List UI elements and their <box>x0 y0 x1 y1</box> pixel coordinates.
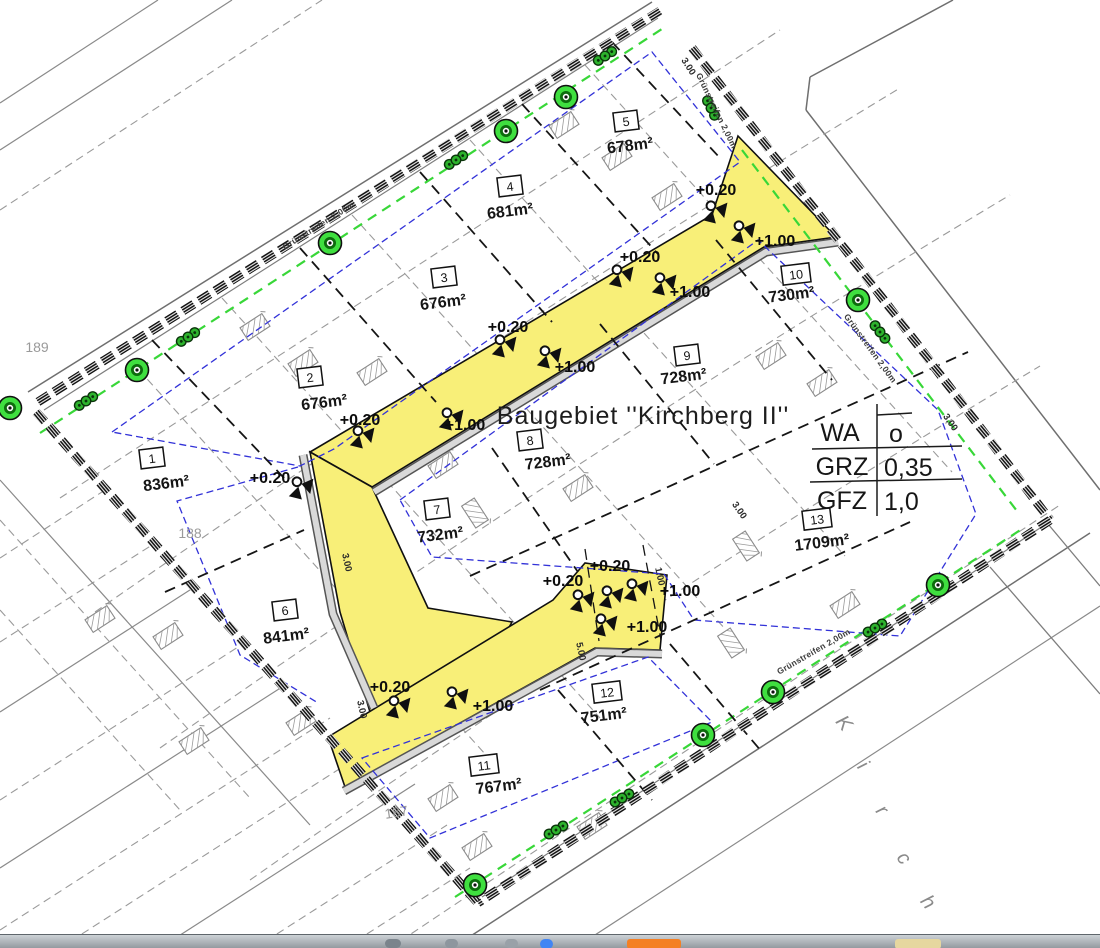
elevation-label: +1.00 <box>670 284 711 301</box>
parcel-area: 841m² <box>262 625 310 648</box>
tree-icon <box>692 724 715 747</box>
shrub-symbols <box>73 45 892 841</box>
shed-icon <box>461 829 496 860</box>
street-letter: c <box>892 848 915 869</box>
tree-icon <box>555 86 578 109</box>
road-main-branch <box>310 136 836 487</box>
parcel-label-9: 9 728m² <box>657 343 708 388</box>
cadastral-background-lines <box>0 0 1100 948</box>
parcel-area: 767m² <box>475 776 523 799</box>
parcel-label-11: 11 767m² <box>469 751 523 798</box>
parcel-number: 11 <box>477 758 492 773</box>
taskbar <box>0 934 1100 948</box>
parcel-area: 836m² <box>142 473 190 496</box>
taskbar-app-icon[interactable] <box>540 939 553 948</box>
elevation-label: +1.00 <box>445 417 486 434</box>
taskbar-app-icon[interactable] <box>895 939 941 948</box>
elevation-label: +0.20 <box>590 558 631 575</box>
dimension-label: 3.00 <box>940 412 960 433</box>
parcel-area: 732m² <box>416 524 464 547</box>
zoning-row-value: o <box>889 420 903 448</box>
site-plan-canvas: +0.20 +1.00 +0.20 +1.00 +0.20 +1.00 +0.2… <box>0 0 1100 948</box>
tree-icon <box>319 232 342 255</box>
shed-icon <box>548 107 583 138</box>
parcel-label-1: 1 836m² <box>139 444 190 495</box>
tree-icon <box>495 120 518 143</box>
shed-icon <box>562 470 597 501</box>
parcel-label-10: 10 730m² <box>765 263 816 307</box>
parcel-number: 10 <box>788 267 804 283</box>
shrub-icon <box>73 390 100 412</box>
zoning-row-value: 1,0 <box>884 488 919 516</box>
elevation-label: +0.20 <box>543 573 584 590</box>
district-number: 189 <box>25 339 49 355</box>
parcel-area: 681m² <box>486 200 534 223</box>
taskbar-app-icon[interactable] <box>445 939 458 948</box>
elevation-label: +0.20 <box>620 249 661 266</box>
elevation-label: +0.20 <box>696 182 737 199</box>
district-number: 188 <box>178 525 202 541</box>
elevation-label: +0.20 <box>370 679 411 696</box>
shed-icon <box>733 530 764 565</box>
elevation-label: +0.20 <box>250 470 291 487</box>
street-letter: r <box>871 801 893 821</box>
parcel-area: 1709m² <box>794 531 851 555</box>
shed-icon <box>651 179 686 210</box>
parcel-label-3: 3 676m² <box>416 265 467 314</box>
tree-icon <box>847 289 870 312</box>
shed-icon <box>427 780 462 811</box>
parcel-label-6: 6 841m² <box>259 598 310 648</box>
elevation-label: +0.20 <box>488 319 529 336</box>
elevation-label: +1.00 <box>755 233 796 250</box>
shed-icon <box>356 354 391 385</box>
dimension-label: 3.00 <box>729 500 749 521</box>
tree-icon <box>126 359 149 382</box>
zoning-row-value: 0,35 <box>884 454 933 482</box>
elevation-label: +1.00 <box>660 583 701 600</box>
shed-icon <box>755 338 790 369</box>
district-number: 187 <box>383 802 409 821</box>
boundary-northeast <box>692 48 1050 520</box>
taskbar-app-icon[interactable] <box>505 939 518 948</box>
shed-icon <box>239 309 274 340</box>
elevation-label: +1.00 <box>627 619 668 636</box>
dimension-label: 3.00 <box>354 699 369 719</box>
parcel-label-4: 4 681m² <box>483 174 534 223</box>
parcel-area: 730m² <box>768 284 816 307</box>
taskbar-app-icon[interactable] <box>627 939 681 948</box>
street-name-letters: K i r c h <box>831 711 940 913</box>
parcel-area: 678m² <box>606 135 654 158</box>
parcel-area: 676m² <box>419 292 467 315</box>
street-letter: K <box>831 711 858 736</box>
shrub-icon <box>175 326 202 348</box>
parcel-area: 751m² <box>580 705 628 728</box>
plan-title: Baugebiet ''Kirchberg II'' <box>497 402 789 430</box>
green-strip-label: Grünstreifen 2,00m <box>775 626 852 676</box>
tree-icon <box>762 681 785 704</box>
parcel-area: 728m² <box>660 366 708 389</box>
shed-icon <box>152 618 187 649</box>
elevation-label: +1.00 <box>473 698 514 715</box>
tree-icon <box>927 574 950 597</box>
zoning-row-label: GFZ <box>817 487 867 515</box>
bebauungsplan-screenshot: +0.20 +1.00 +0.20 +1.00 +0.20 +1.00 +0.2… <box>0 0 1100 948</box>
tree-icon <box>464 874 487 897</box>
parcel-area: 728m² <box>524 451 572 474</box>
shed-icon <box>462 497 493 532</box>
shed-icon <box>718 627 749 662</box>
zoning-table: WA o GRZ 0,35 GFZ 1,0 <box>810 404 962 516</box>
parcel-area: 676m² <box>300 392 348 415</box>
street-letter: h <box>916 891 940 913</box>
shed-icon <box>829 587 864 618</box>
parcel-label-7: 7 732m² <box>413 497 464 547</box>
zoning-row-label: WA <box>820 419 860 447</box>
elevation-label: +0.20 <box>340 412 381 429</box>
parcel-number: 12 <box>599 685 615 701</box>
shed-icon <box>285 704 320 735</box>
parcel-label-2: 2 676m² <box>297 363 348 414</box>
zoning-row-label: GRZ <box>816 453 869 481</box>
taskbar-app-icon[interactable] <box>385 939 401 948</box>
parcel-label-12: 12 751m² <box>577 680 628 727</box>
tree-icon <box>0 397 22 420</box>
shed-icon <box>178 723 213 754</box>
elevation-label: +1.00 <box>555 359 596 376</box>
